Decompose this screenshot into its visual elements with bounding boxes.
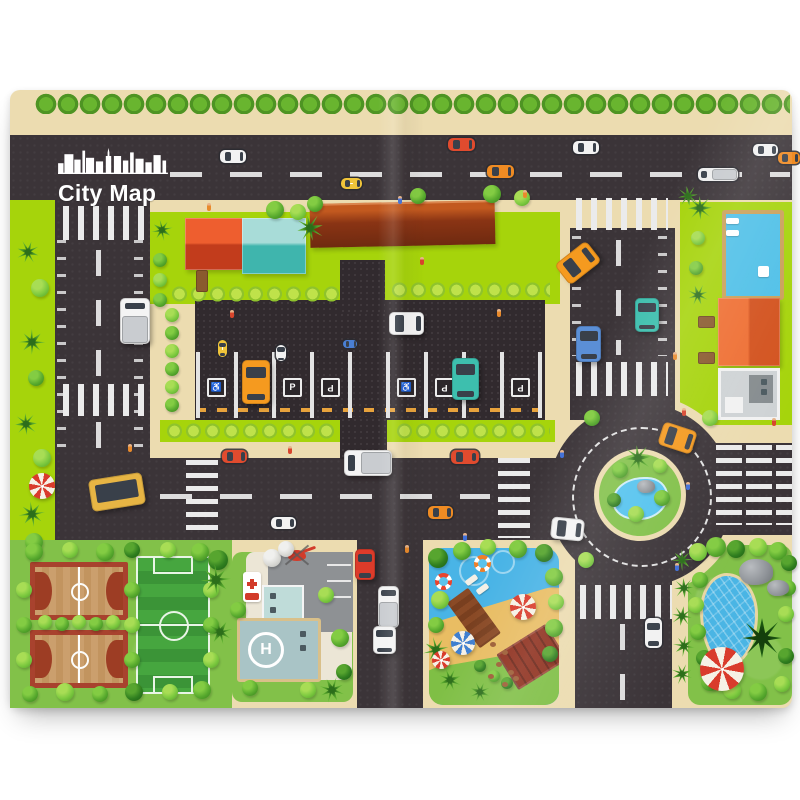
windshield (648, 641, 659, 645)
vehicle-car (550, 516, 585, 541)
vehicle-carv (242, 360, 270, 404)
vehicle-car (778, 152, 800, 164)
windshield (456, 364, 475, 375)
cargo-box (379, 602, 397, 626)
windshield (508, 167, 512, 175)
windshield (358, 554, 372, 562)
windshield (125, 303, 145, 309)
city-map-playmat: H (10, 90, 792, 708)
vehicle-car (573, 141, 599, 154)
vehicle-truck (698, 168, 738, 181)
vehicle-car (222, 450, 247, 463)
vehicle-carv (276, 345, 286, 361)
windshield (395, 315, 404, 332)
windshield (240, 152, 244, 160)
taxi-roof-light (222, 347, 223, 350)
windshield (472, 453, 476, 462)
vehicle-car (428, 506, 453, 519)
windshield (453, 140, 460, 149)
windshield (664, 426, 678, 445)
windshield (457, 391, 474, 397)
taxi-roof-light (350, 183, 353, 185)
windshield (354, 341, 356, 346)
windshield (376, 630, 393, 637)
windshield (639, 325, 654, 330)
windshield (278, 358, 284, 360)
windshield (684, 434, 693, 450)
city-skyline-icon (58, 147, 168, 174)
vehicle-car (220, 150, 246, 163)
windshield (95, 479, 138, 502)
city-map-title: City Map (58, 180, 188, 207)
vehicle-car (554, 240, 602, 285)
vehicle-taxiv (218, 340, 227, 357)
vehicle-taxi (341, 178, 362, 189)
windshield (357, 180, 360, 187)
vehicle-bus (88, 472, 146, 512)
vehicle-car (753, 144, 778, 156)
windshield (638, 303, 655, 312)
photo-background: H (0, 0, 800, 800)
city-map-logo: City Map (58, 147, 188, 207)
cargo-box (122, 316, 148, 343)
vehicle-carv (355, 549, 375, 580)
vehicle-truckv (378, 586, 399, 628)
windshield (433, 508, 440, 517)
windshield (782, 154, 788, 163)
windshield (556, 520, 566, 537)
windshield (492, 167, 499, 176)
vehicle-car (271, 517, 296, 529)
windshield (359, 573, 372, 577)
vehicle-car (657, 421, 698, 455)
windshield (241, 452, 245, 460)
windshield (377, 648, 392, 652)
vehicle-carv (645, 618, 662, 648)
windshield (578, 143, 585, 152)
vehicle-car (389, 312, 424, 335)
windshield (346, 341, 350, 347)
vehicle-carv (373, 626, 396, 654)
windshield (447, 508, 451, 516)
vehicle-car (343, 340, 357, 348)
windshield (575, 523, 581, 537)
windshield (562, 257, 582, 278)
vehicle-vanv (635, 298, 659, 332)
windshield (247, 394, 265, 400)
windshield (795, 154, 798, 162)
cargo-box (361, 452, 391, 475)
vehicle-carv (452, 358, 479, 400)
vehicle-van (451, 450, 479, 464)
windshield (772, 146, 776, 154)
vehicle-carv (576, 326, 601, 362)
windshield (381, 590, 395, 596)
windshield (277, 347, 284, 351)
windshield (225, 152, 232, 161)
windshield (416, 316, 421, 331)
vehicle-truck (344, 450, 392, 476)
cargo-box (712, 169, 737, 180)
windshield (290, 519, 294, 527)
vehicle-car (448, 138, 475, 151)
windshield (276, 519, 283, 528)
windshield (758, 146, 765, 155)
windshield (593, 143, 597, 151)
windshield (227, 452, 234, 461)
windshield (581, 247, 596, 264)
windshield (220, 353, 226, 355)
windshield (246, 367, 266, 378)
vehicle-car (487, 165, 514, 178)
windshield (469, 140, 473, 148)
windshield (701, 171, 707, 179)
windshield (647, 623, 659, 631)
windshield (581, 354, 597, 359)
windshield (580, 331, 598, 340)
windshield (348, 455, 355, 471)
windshield (456, 452, 463, 462)
vehicle-truckv (120, 298, 150, 344)
